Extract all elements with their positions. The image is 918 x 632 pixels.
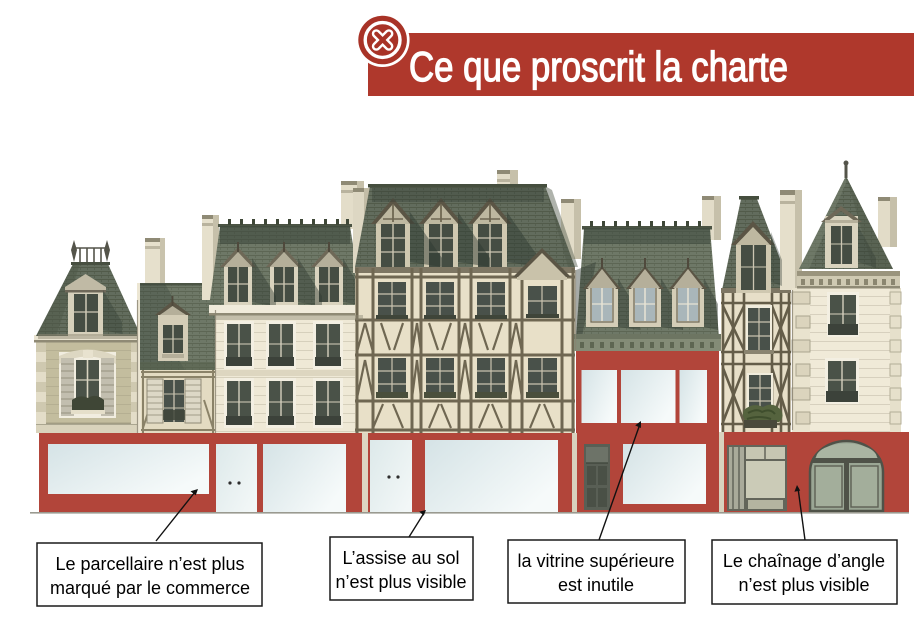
svg-text:L’assise au sol: L’assise au sol	[342, 548, 459, 568]
svg-text:Ce que proscrit la charte: Ce que proscrit la charte	[409, 43, 788, 90]
svg-text:n’est plus visible: n’est plus visible	[335, 572, 466, 592]
svg-text:Le chaînage d’angle: Le chaînage d’angle	[723, 551, 885, 571]
svg-text:marqué par le commerce: marqué par le commerce	[50, 578, 250, 598]
svg-text:Le parcellaire n’est plus: Le parcellaire n’est plus	[55, 554, 244, 574]
svg-text:est inutile: est inutile	[558, 575, 634, 595]
svg-text:n’est plus visible: n’est plus visible	[738, 575, 869, 595]
svg-text:la vitrine supérieure: la vitrine supérieure	[517, 551, 674, 571]
